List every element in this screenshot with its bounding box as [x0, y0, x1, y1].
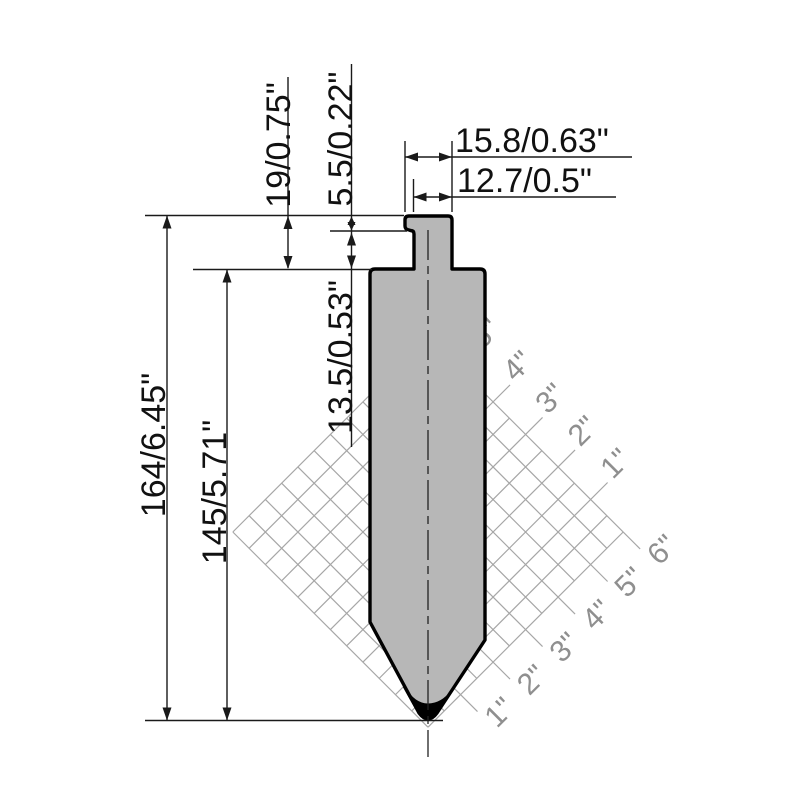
- grid-ruler-label: 1": [478, 691, 521, 734]
- label-tang-step-depth: 5.5/0.22": [322, 72, 360, 207]
- grid-ruler-label: 6": [641, 529, 684, 572]
- grid-ruler-label: 2": [511, 659, 554, 702]
- grid-ruler-label: 3": [529, 377, 572, 420]
- grid-ruler-label: 4": [576, 594, 619, 637]
- label-body-height: 145/5.71": [196, 420, 234, 564]
- label-tang-height: 19/0.75": [260, 82, 298, 208]
- label-shank-below-step: 13.5/0.53": [322, 280, 360, 434]
- label-tang-top-width: 15.8/0.63": [455, 122, 609, 160]
- grid-ruler-label: 1": [594, 442, 637, 485]
- label-total-height: 164/6.45": [135, 373, 173, 517]
- label-shank-width: 12.7/0.5": [457, 162, 592, 200]
- punch-drawing-svg: 5"4"3"2"1"6"5"4"3"2"1" 164/6.45": [0, 0, 800, 800]
- grid-ruler-label: 5": [609, 561, 652, 604]
- technical-drawing-canvas: 5"4"3"2"1"6"5"4"3"2"1" 164/6.45": [0, 0, 800, 800]
- grid-ruler-label: 3": [543, 626, 586, 669]
- grid-ruler-label: 4": [497, 345, 540, 388]
- grid-ruler-label: 2": [562, 410, 605, 453]
